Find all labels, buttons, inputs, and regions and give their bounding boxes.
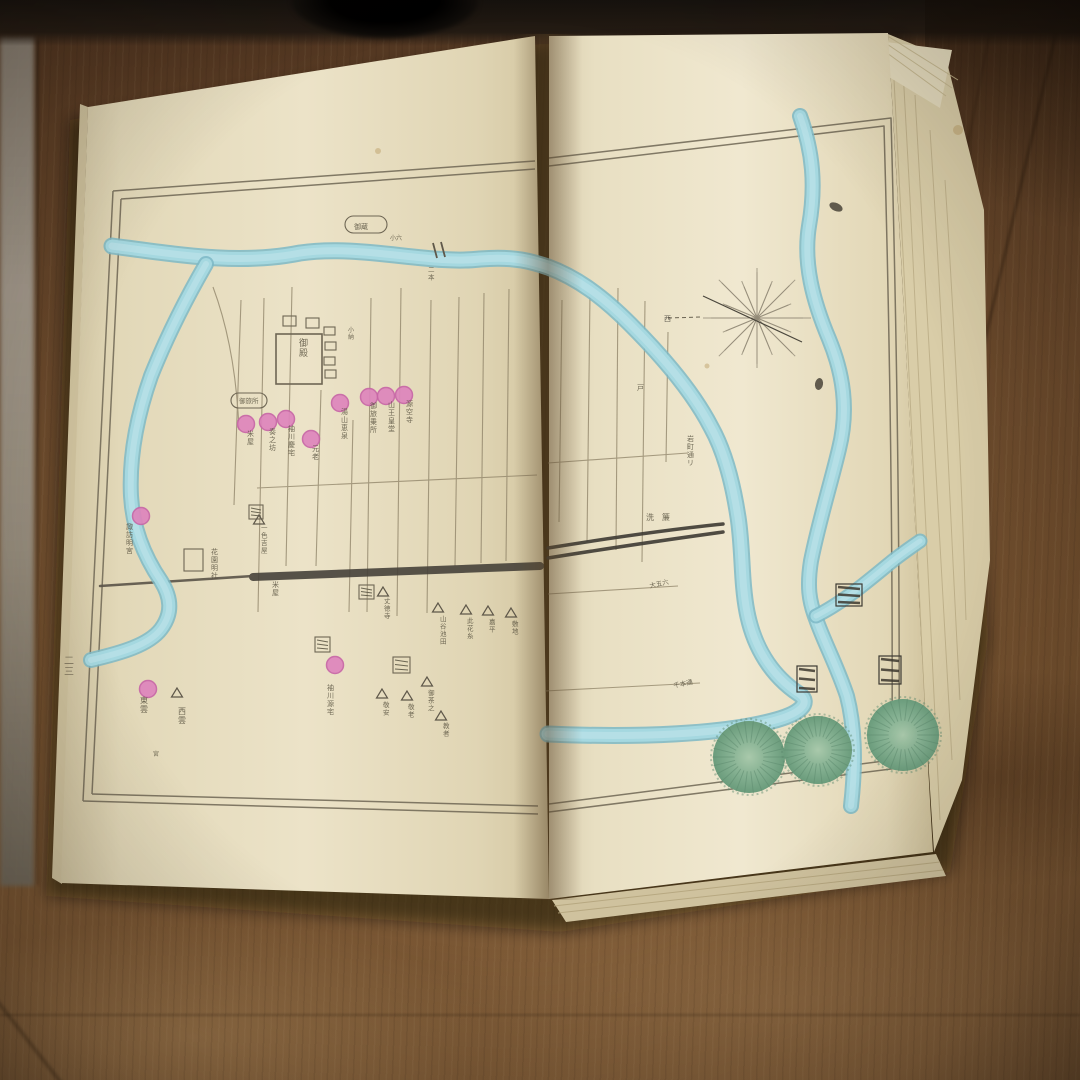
map-label: 宮 <box>153 750 159 758</box>
map-label-char: 田 <box>440 638 447 646</box>
cartouche-label: 御旅所 <box>239 396 259 405</box>
map-label-char: 糸 <box>467 631 474 640</box>
pink-site-marker <box>140 681 157 698</box>
castle-name: 御殿 <box>299 337 308 359</box>
map-label-char: 二 <box>64 656 74 667</box>
map-label-char: 西 <box>178 707 186 716</box>
map-label-char: 坊 <box>269 443 276 452</box>
map-label-char: 屋 <box>261 547 268 555</box>
map-label-char: 乗 <box>370 417 377 426</box>
map-label: 二本 <box>428 266 435 282</box>
map-label: 洗簾 <box>646 512 678 522</box>
map-label-char: 通 <box>687 450 694 459</box>
map-label-char: 恵 <box>341 423 348 432</box>
map-label-char: 袖 <box>288 424 295 433</box>
map-label: 一色吉屋 <box>261 524 268 555</box>
map-label-char: 米 <box>272 580 279 589</box>
map-label: 東雲 <box>140 695 148 714</box>
map-label-char: 堂 <box>388 424 395 433</box>
map-label-char: 皇 <box>388 416 395 425</box>
map-label: 湯山恵泉 <box>341 407 348 440</box>
glyph-stroke <box>838 595 860 597</box>
map-label-char: 奏 <box>269 427 276 436</box>
map-label-char: 納 <box>348 333 354 341</box>
map-label-char: 宅 <box>288 448 295 457</box>
map-label-char: 園 <box>211 556 218 564</box>
map-label: 戸 <box>637 384 644 392</box>
map-label: 山王皇堂 <box>388 400 395 433</box>
open-book: 御殿小納御旅所御蔵小六二本湯山恵泉御旅乗所山王皇堂源空寺米屋奏之坊袖川慶宅元老諏… <box>0 0 1080 1080</box>
map-label-char: 米 <box>247 429 254 438</box>
glyph-stroke <box>799 688 815 689</box>
village-label-box <box>879 656 901 684</box>
paper-stain <box>375 148 381 154</box>
paper-stain <box>705 364 710 369</box>
map-label-char: 御 <box>370 401 377 410</box>
map-label: 袖川源宅 <box>327 683 334 716</box>
map-label-char: 慶 <box>288 440 295 449</box>
map-label-char: 王 <box>388 409 395 417</box>
map-label-char: 老 <box>312 452 319 461</box>
map-label-char: 寺 <box>406 416 413 424</box>
map-label: 丈徳寺 <box>384 596 391 620</box>
map-label-char: 屋 <box>247 438 254 446</box>
map-label: 嘉平 <box>489 617 496 634</box>
glyph-stroke <box>799 679 815 681</box>
map-label-char: 御 <box>299 337 308 349</box>
map-label-char: 者 <box>443 730 450 738</box>
map-label: 袖川慶宅 <box>288 424 295 457</box>
map-label-char: 宮 <box>126 546 133 555</box>
map-label-char: 寺 <box>384 612 391 620</box>
map-label-char: 湯 <box>341 407 348 416</box>
map-label: 米屋 <box>247 429 254 446</box>
map-label: 敬安 <box>383 700 390 717</box>
map-label-char: 川 <box>327 692 334 700</box>
map-label-char: 町 <box>687 443 694 451</box>
map-label-char: 三 <box>64 667 74 678</box>
glyph-stroke <box>881 680 899 681</box>
map-label-char: 訪 <box>126 530 133 539</box>
spine-shadow <box>514 34 582 900</box>
map-label-char: 雲 <box>140 705 148 714</box>
map-label: 敬老 <box>408 702 415 719</box>
map-label-char: 東 <box>140 695 148 705</box>
map-label: 小六 <box>390 234 402 242</box>
map-label-char: 安 <box>383 708 390 717</box>
map-label-char: 宅 <box>327 707 334 716</box>
map-label: 米屋 <box>272 580 279 597</box>
map-label-char: 明 <box>126 539 133 547</box>
map-label-char: 之 <box>269 435 276 444</box>
glyph-stroke <box>881 670 899 672</box>
map-label: 奏之坊 <box>269 427 276 452</box>
map-label-char: 山 <box>341 415 348 424</box>
map-label-char: 屋 <box>272 589 279 597</box>
map-label-char: 山 <box>388 400 395 409</box>
pink-site-marker <box>327 657 344 674</box>
map-label: 小納 <box>348 326 354 341</box>
map-label-char: 空 <box>406 407 413 416</box>
map-label-char: 旅 <box>370 409 377 418</box>
map-label-char: 宮 <box>153 750 159 758</box>
page-number: 二三 <box>64 656 74 678</box>
map-label-char: 泉 <box>341 431 348 440</box>
map-label-char: リ <box>687 459 694 467</box>
map-label: 諏訪明宮 <box>126 522 133 555</box>
map-label: 西 <box>664 315 671 323</box>
map-label: 元老 <box>312 445 319 461</box>
glyph-stroke <box>838 602 860 603</box>
map-label-char: 岩 <box>687 434 694 443</box>
map-label-char: 所 <box>370 425 377 434</box>
map-label-char: 源 <box>406 399 413 408</box>
village-label-box <box>797 666 817 692</box>
map-label-char: 袖 <box>327 683 334 692</box>
map-label-char: 老 <box>408 710 415 719</box>
map-label-char: 平 <box>489 626 496 634</box>
map-label-char: 殿 <box>299 348 308 359</box>
map-label-char: 本 <box>428 273 435 282</box>
map-label: 此花糸 <box>467 616 474 640</box>
map-label-char: 明 <box>211 564 218 572</box>
map-label-char: 小 <box>348 326 354 334</box>
map-label: 西雲 <box>178 707 186 725</box>
map-label-char: 雲 <box>178 716 186 725</box>
map-label: 岩町通リ <box>687 434 694 467</box>
map-label-char: 源 <box>327 699 334 708</box>
map-label: 御茶之 <box>428 688 435 712</box>
cartouche-label: 御蔵 <box>354 222 368 231</box>
paper-stain <box>953 125 963 135</box>
pink-site-marker <box>133 508 150 525</box>
map-label: 教者 <box>443 721 450 738</box>
map-label-char: 花 <box>211 547 218 556</box>
map-label-char: 諏 <box>126 522 133 531</box>
map-label-char: 元 <box>312 445 319 453</box>
map-label-char: 川 <box>288 433 295 441</box>
map-label: 源空寺 <box>406 399 413 424</box>
map-label: 山谷池田 <box>440 614 447 646</box>
map-label-char: 戸 <box>637 384 644 392</box>
map-label-char: 社 <box>211 571 218 580</box>
map-label: 御旅乗所 <box>370 401 377 434</box>
map-label: 花園明社 <box>211 547 218 580</box>
photo-scene: 御殿小納御旅所御蔵小六二本湯山恵泉御旅乗所山王皇堂源空寺米屋奏之坊袖川慶宅元老諏… <box>0 0 1080 1080</box>
map-label-char: 之 <box>428 703 435 712</box>
